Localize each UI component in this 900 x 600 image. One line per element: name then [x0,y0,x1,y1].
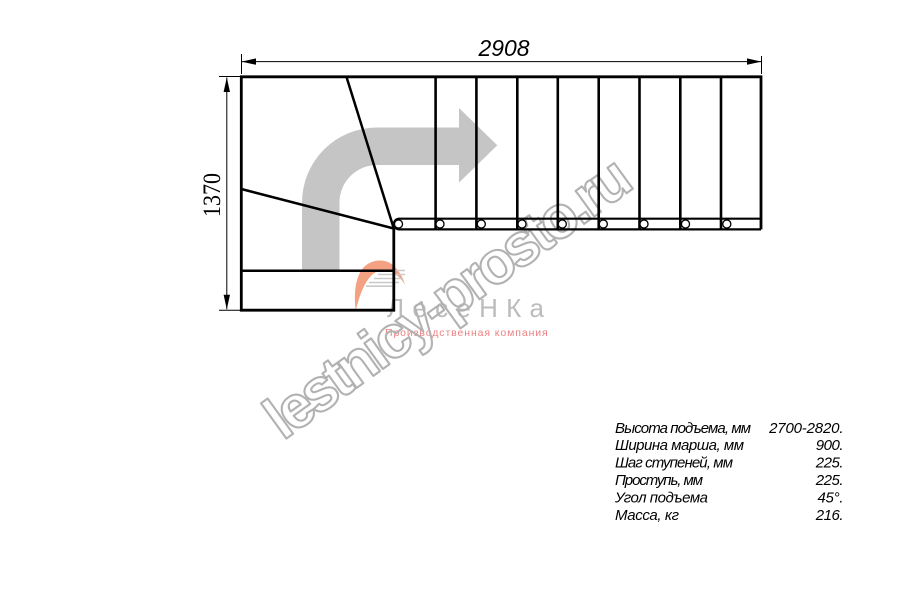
svg-text:Масса, кг: Масса, кг [615,507,680,524]
svg-text:Угол подъема: Угол подъема [614,489,708,506]
svg-text:1370: 1370 [197,173,226,217]
svg-text:Ширина марша, мм: Ширина марша, мм [615,437,744,454]
svg-text:216.: 216. [815,507,844,524]
svg-text:45°.: 45°. [818,489,844,506]
svg-text:2700-2820.: 2700-2820. [768,420,843,437]
svg-text:225.: 225. [815,455,844,472]
svg-text:225.: 225. [815,472,844,489]
svg-text:Проступь, мм: Проступь, мм [615,472,703,489]
svg-text:Шаг ступеней, мм: Шаг ступеней, мм [615,455,733,472]
svg-text:2908: 2908 [478,35,530,61]
svg-text:900.: 900. [816,437,844,454]
svg-text:Высота подъема, мм: Высота подъема, мм [615,420,751,437]
